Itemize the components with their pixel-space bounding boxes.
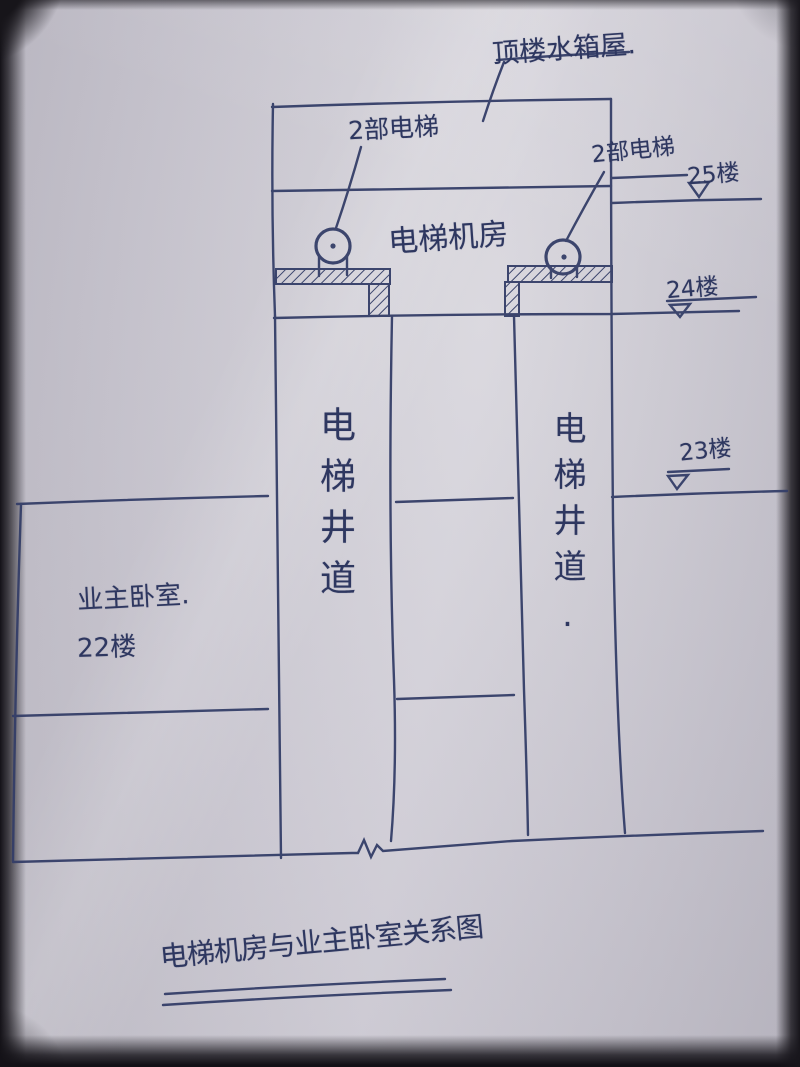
floor-24-label: 24楼: [665, 267, 720, 305]
level-marker-23: [612, 469, 787, 497]
left-shaft-label: 电梯井道: [308, 406, 360, 610]
floor-25-label: 25楼: [686, 153, 741, 191]
elevator-diagram-sketch-lines: [0, 0, 800, 1067]
bedroom-floor-label: 22楼: [76, 626, 136, 665]
floor-23-label: 23楼: [677, 428, 733, 467]
bottom-line: [13, 831, 763, 862]
left-elevators-label: 2部电梯: [347, 107, 440, 148]
mid-floor-dividers: [396, 498, 514, 699]
photo-of-hand-drawn-diagram: 顶楼水箱屋. 2部电梯 2部电梯 25楼 电梯机房 24楼 23楼 电梯井道 电…: [0, 0, 800, 1067]
title-underline: [163, 979, 451, 1005]
bedroom-outline: [13, 496, 268, 861]
bedroom-label: 业主卧室.: [76, 574, 190, 617]
right-shaft-label: 电梯井道.: [543, 411, 591, 647]
machine-room-label: 电梯机房: [387, 209, 510, 261]
